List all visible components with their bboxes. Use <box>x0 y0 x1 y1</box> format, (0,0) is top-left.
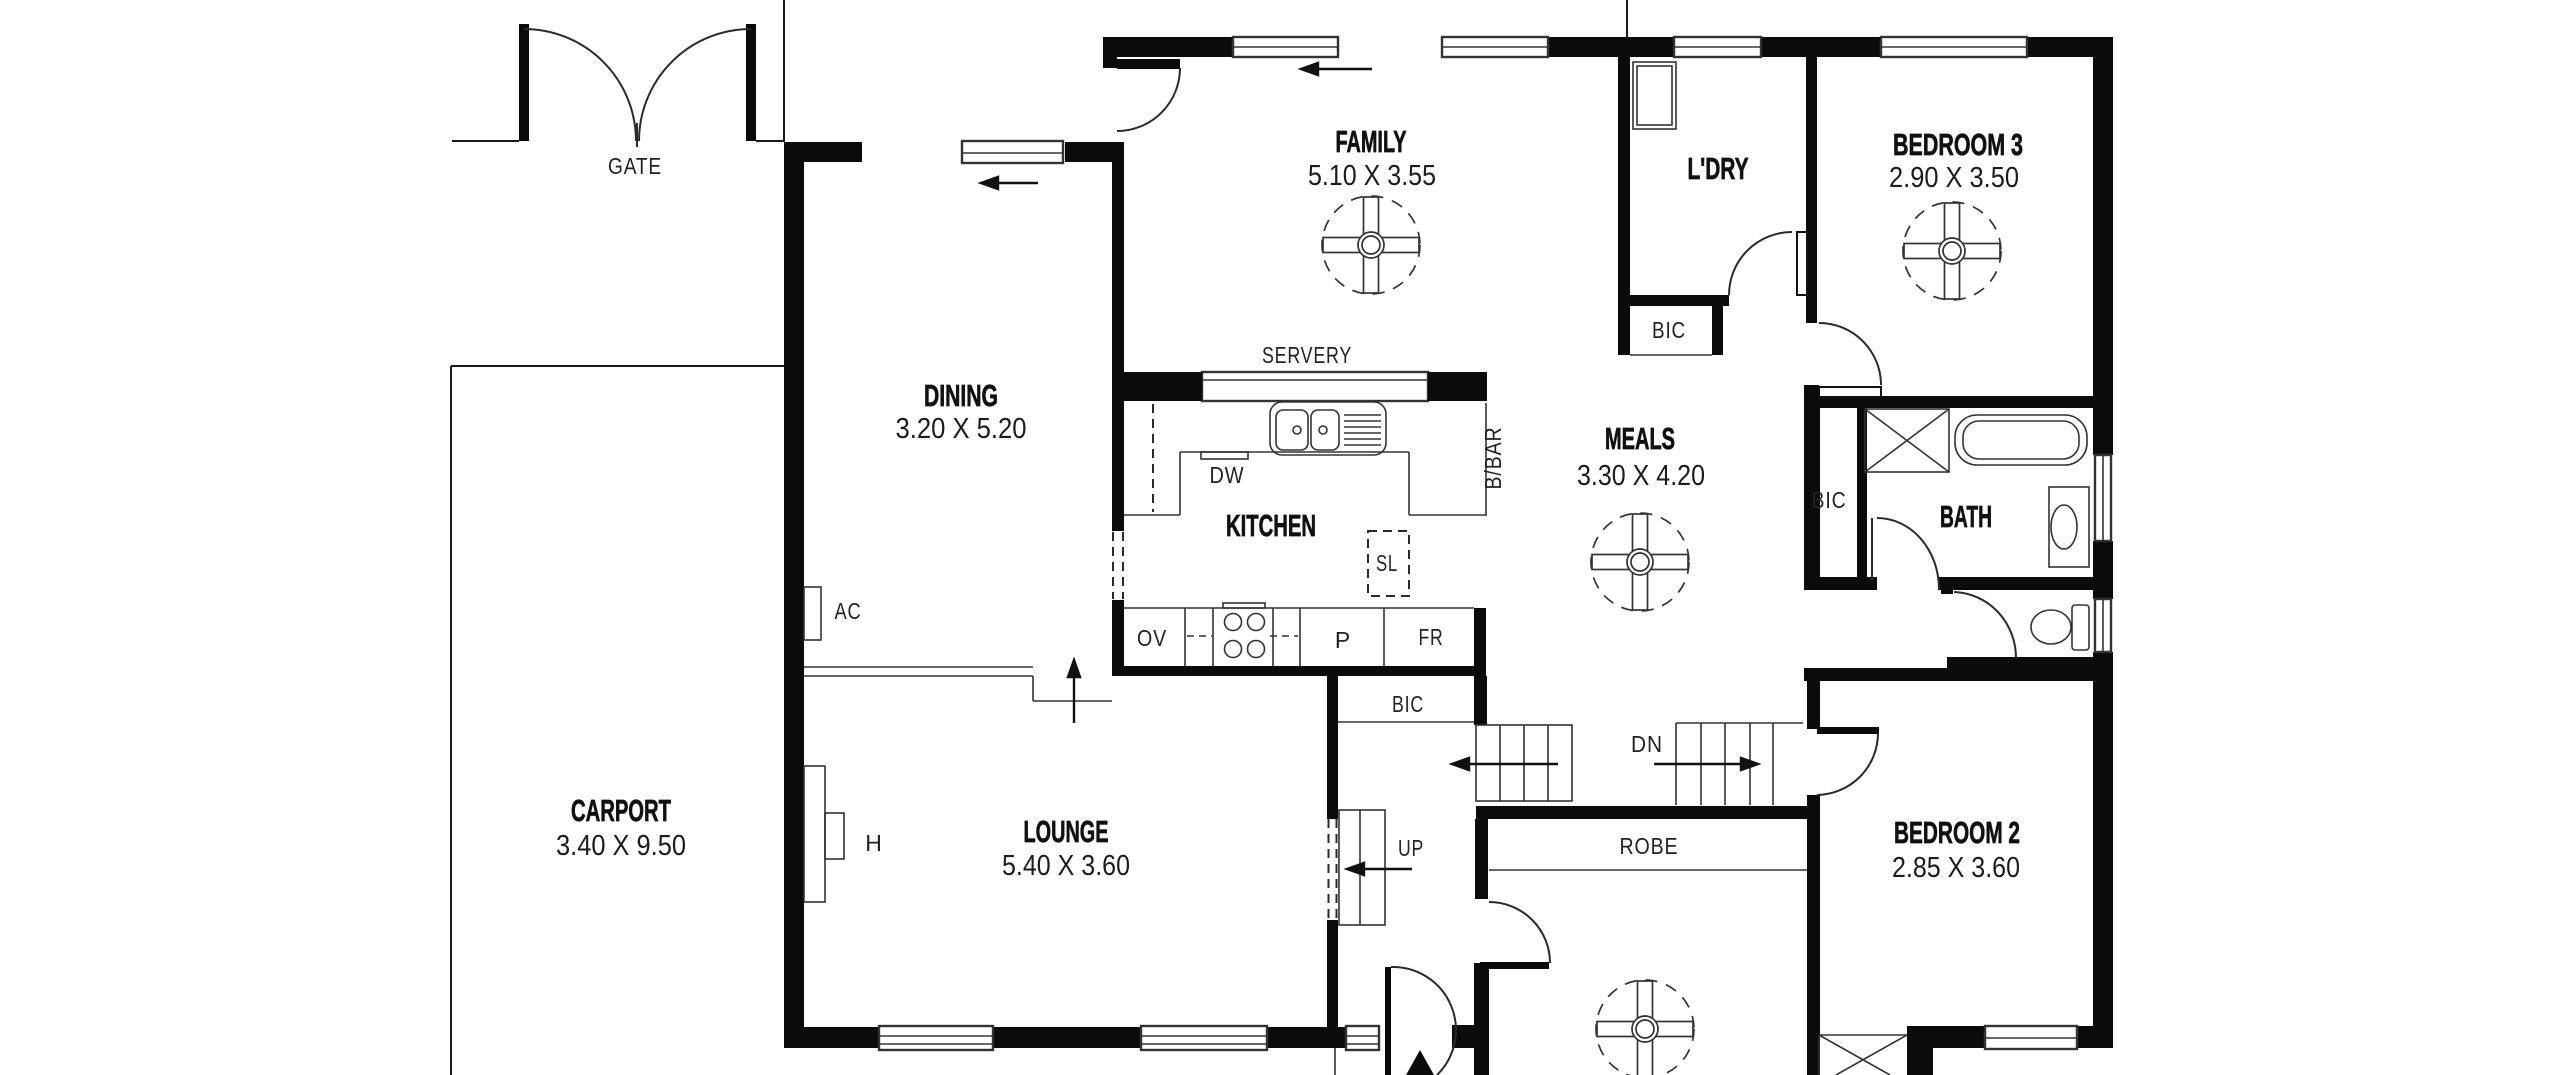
svg-text:CARPORT: CARPORT <box>571 793 671 828</box>
svg-text:FAMILY: FAMILY <box>1336 124 1407 159</box>
svg-text:2.85 X 3.60: 2.85 X 3.60 <box>1892 852 2020 884</box>
svg-text:P: P <box>1335 627 1351 653</box>
svg-text:UP: UP <box>1398 835 1424 861</box>
svg-text:DINING: DINING <box>924 378 998 413</box>
svg-text:GATE: GATE <box>608 153 662 179</box>
svg-text:SERVERY: SERVERY <box>1262 342 1352 368</box>
svg-text:OV: OV <box>1137 625 1167 651</box>
svg-text:H: H <box>865 830 883 856</box>
svg-text:DN: DN <box>1631 731 1663 757</box>
svg-text:BIC: BIC <box>1392 691 1424 717</box>
svg-text:5.10 X 3.55: 5.10 X 3.55 <box>1308 160 1436 192</box>
svg-text:3.30 X 4.20: 3.30 X 4.20 <box>1577 460 1705 492</box>
svg-text:FR: FR <box>1419 624 1444 650</box>
svg-text:2.90 X 3.50: 2.90 X 3.50 <box>1889 162 2019 194</box>
svg-text:BEDROOM 2: BEDROOM 2 <box>1894 815 2020 850</box>
svg-text:DW: DW <box>1210 462 1245 488</box>
svg-text:3.40 X 9.50: 3.40 X 9.50 <box>556 830 686 862</box>
svg-text:L'DRY: L'DRY <box>1688 151 1749 186</box>
svg-text:B/BAR: B/BAR <box>1480 427 1506 490</box>
svg-text:BIC: BIC <box>1812 487 1847 513</box>
svg-text:BEDROOM 3: BEDROOM 3 <box>1893 127 2023 162</box>
svg-text:5.40 X 3.60: 5.40 X 3.60 <box>1002 850 1130 882</box>
svg-text:BATH: BATH <box>1940 499 1992 534</box>
svg-text:AC: AC <box>835 598 862 624</box>
svg-text:LOUNGE: LOUNGE <box>1024 814 1109 849</box>
svg-text:KITCHEN: KITCHEN <box>1226 508 1316 543</box>
svg-text:MEALS: MEALS <box>1605 421 1675 456</box>
svg-text:BIC: BIC <box>1652 317 1686 343</box>
svg-text:3.20 X 5.20: 3.20 X 5.20 <box>896 413 1027 445</box>
svg-text:ROBE: ROBE <box>1620 833 1679 859</box>
svg-text:SL: SL <box>1376 550 1398 576</box>
